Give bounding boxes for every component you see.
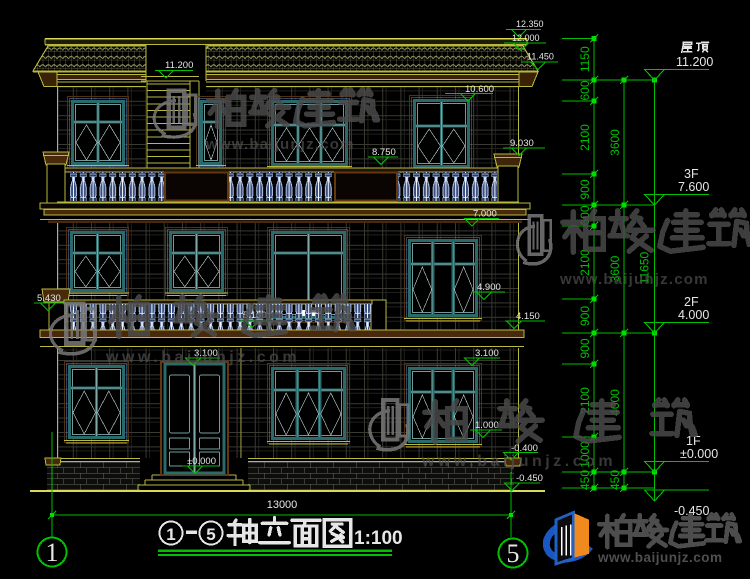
svg-text:5.430: 5.430 xyxy=(37,293,61,304)
svg-text:600: 600 xyxy=(578,80,592,100)
svg-text:11.200: 11.200 xyxy=(165,60,193,71)
svg-text:www.baijunjz.com: www.baijunjz.com xyxy=(421,453,616,470)
svg-text:1: 1 xyxy=(46,538,59,567)
svg-text:±0.000: ±0.000 xyxy=(680,447,718,461)
svg-text:1: 1 xyxy=(166,525,175,544)
svg-text:900: 900 xyxy=(578,179,592,199)
svg-text:1.000: 1.000 xyxy=(475,420,499,431)
svg-text:±0.000: ±0.000 xyxy=(187,456,216,467)
svg-text:450: 450 xyxy=(608,470,622,490)
svg-text:2F: 2F xyxy=(684,295,699,309)
svg-text:4.900: 4.900 xyxy=(477,282,501,293)
svg-text:1:100: 1:100 xyxy=(354,528,403,549)
svg-text:www.baijunjz.com: www.baijunjz.com xyxy=(105,349,300,366)
svg-text:8.750: 8.750 xyxy=(372,147,396,158)
svg-text:3F: 3F xyxy=(684,167,699,181)
svg-text:450: 450 xyxy=(578,470,592,490)
svg-text:7.600: 7.600 xyxy=(678,180,709,194)
svg-text:www.baijunjz.com: www.baijunjz.com xyxy=(597,550,723,565)
svg-text:www.baijunjz.com: www.baijunjz.com xyxy=(559,271,709,288)
svg-text:-0.450: -0.450 xyxy=(516,473,543,484)
svg-text:5: 5 xyxy=(507,539,520,568)
svg-text:9.030: 9.030 xyxy=(510,138,534,149)
svg-text:900: 900 xyxy=(578,338,592,358)
svg-text:900: 900 xyxy=(578,306,592,326)
svg-text:12.350: 12.350 xyxy=(516,19,544,29)
svg-text:5: 5 xyxy=(206,525,215,544)
svg-text:www.baijunjz.com: www.baijunjz.com xyxy=(205,136,355,153)
svg-text:1150: 1150 xyxy=(578,46,592,72)
svg-text:3.100: 3.100 xyxy=(475,348,499,359)
svg-text:4.000: 4.000 xyxy=(678,308,709,322)
svg-text:12.000: 12.000 xyxy=(512,33,540,43)
svg-text:3600: 3600 xyxy=(608,129,622,156)
svg-text:13000: 13000 xyxy=(267,499,298,511)
svg-text:2100: 2100 xyxy=(578,124,592,151)
svg-text:11.200: 11.200 xyxy=(676,55,713,69)
svg-text:11.450: 11.450 xyxy=(527,52,554,62)
svg-text:7.000: 7.000 xyxy=(473,209,497,220)
svg-text:4.150: 4.150 xyxy=(516,311,540,322)
